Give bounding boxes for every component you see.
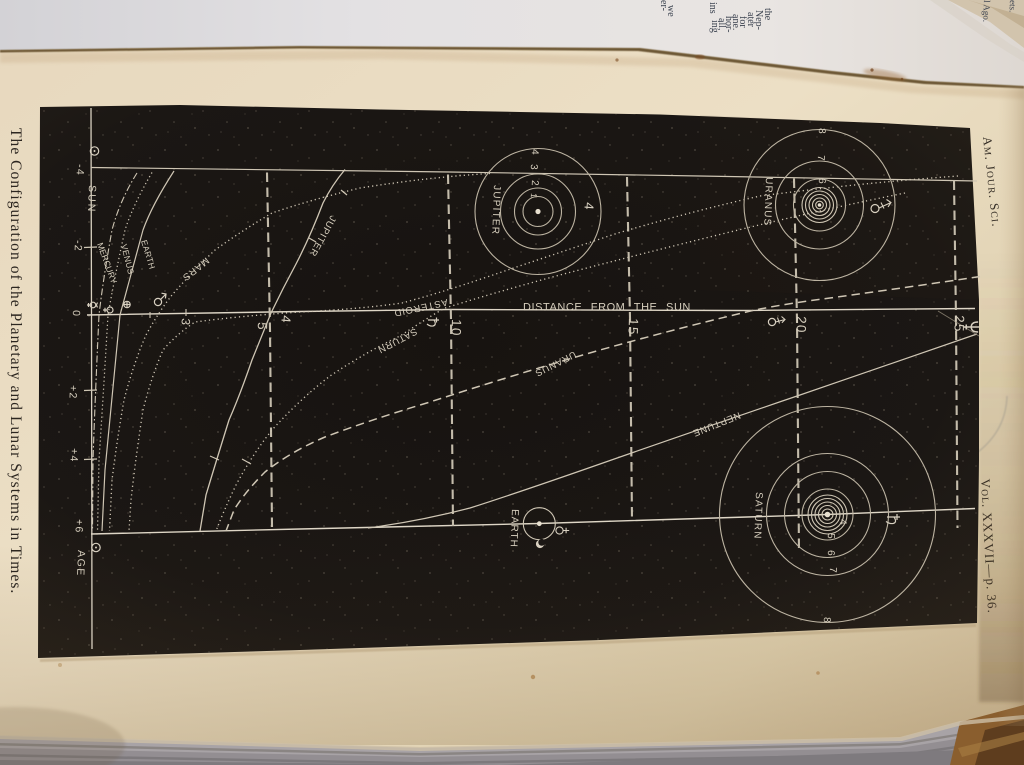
- svg-text:3: 3: [528, 164, 539, 171]
- svg-text:SUN: SUN: [85, 185, 98, 214]
- svg-text:6: 6: [816, 178, 827, 185]
- svg-text:4: 4: [278, 315, 294, 324]
- svg-text:5: 5: [255, 322, 270, 331]
- svg-text:25: 25: [951, 315, 967, 333]
- svg-text:2: 2: [529, 180, 540, 187]
- svg-text:+4: +4: [68, 448, 80, 463]
- svg-text:+2: +2: [67, 385, 79, 400]
- svg-text:ing: ing: [709, 20, 720, 33]
- svg-text:0: 0: [70, 310, 82, 317]
- svg-text:1: 1: [529, 193, 539, 199]
- svg-text:EARTH: EARTH: [508, 509, 520, 548]
- svg-text:DISTANCE FROM THE SUN: DISTANCE FROM THE SUN: [523, 302, 691, 314]
- svg-text:The Configuration of the Plane: The Configuration of the Planetary and L…: [7, 128, 24, 594]
- svg-text:7: 7: [815, 155, 826, 162]
- svg-text:AGE: AGE: [74, 550, 87, 577]
- svg-text:-4: -4: [74, 164, 86, 176]
- svg-text:4: 4: [529, 149, 540, 156]
- svg-text:4: 4: [837, 519, 848, 526]
- svg-text:ets.: ets.: [1008, 0, 1018, 13]
- svg-text:6: 6: [825, 550, 836, 557]
- svg-text:15: 15: [625, 318, 641, 336]
- svg-text:20: 20: [793, 316, 809, 334]
- svg-text:er-: er-: [658, 0, 669, 11]
- svg-text:8: 8: [816, 128, 827, 135]
- svg-text:4: 4: [581, 202, 597, 211]
- svg-text:-2: -2: [72, 240, 84, 252]
- svg-text:5: 5: [825, 533, 836, 540]
- svg-text:+6: +6: [73, 519, 85, 534]
- svg-text:10: 10: [448, 319, 464, 337]
- svg-text:URANUS: URANUS: [761, 177, 774, 227]
- svg-text:7: 7: [827, 567, 838, 574]
- svg-text:JUPITER: JUPITER: [489, 185, 502, 235]
- svg-text:l Ago.: l Ago.: [981, 0, 992, 22]
- svg-text:8: 8: [821, 617, 832, 624]
- svg-text:ins: ins: [707, 2, 718, 14]
- svg-text:SATURN: SATURN: [751, 492, 764, 540]
